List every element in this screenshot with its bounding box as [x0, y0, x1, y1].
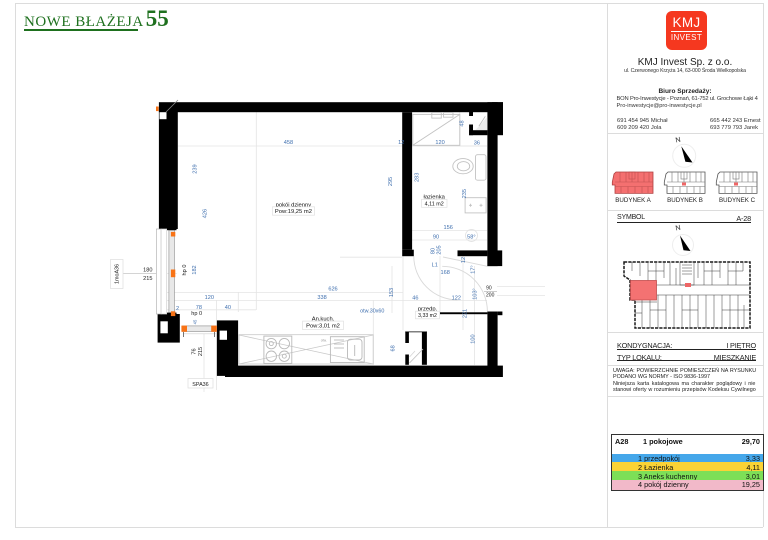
svg-text:239: 239 — [192, 164, 198, 173]
svg-text:hp 0: hp 0 — [182, 265, 188, 276]
svg-text:182: 182 — [192, 265, 198, 274]
svg-text:4,11 m2: 4,11 m2 — [425, 202, 444, 208]
svg-text:626: 626 — [328, 287, 337, 293]
svg-text:205: 205 — [437, 245, 443, 254]
svg-text:90: 90 — [486, 286, 492, 292]
svg-text:N: N — [675, 137, 681, 145]
svg-text:215: 215 — [143, 276, 152, 282]
svg-text:12: 12 — [398, 140, 404, 146]
svg-text:90: 90 — [433, 235, 439, 241]
svg-text:295: 295 — [388, 177, 394, 186]
svg-text:58°: 58° — [467, 234, 475, 240]
svg-text:3,33 m2: 3,33 m2 — [418, 313, 437, 319]
svg-text:215: 215 — [198, 347, 204, 356]
svg-text:76: 76 — [192, 348, 198, 354]
svg-text:221: 221 — [463, 309, 469, 318]
svg-text:168: 168 — [441, 270, 450, 276]
svg-text:458: 458 — [284, 140, 293, 146]
svg-text:17°: 17° — [470, 265, 476, 273]
svg-text:68: 68 — [390, 345, 396, 351]
svg-text:SPA36: SPA36 — [192, 382, 208, 388]
svg-text:180: 180 — [143, 267, 152, 273]
svg-text:Pow:3,01 m2: Pow:3,01 m2 — [306, 324, 340, 330]
svg-text:45: 45 — [193, 319, 198, 324]
svg-text:120: 120 — [205, 295, 214, 301]
svg-text:Pow:19,25 m2: Pow:19,25 m2 — [275, 209, 312, 215]
svg-text:283: 283 — [415, 173, 421, 182]
svg-text:hp 0: hp 0 — [191, 311, 202, 317]
svg-text:200: 200 — [486, 292, 495, 298]
svg-text:338: 338 — [317, 295, 326, 301]
svg-text:40: 40 — [225, 305, 231, 311]
svg-text:153: 153 — [389, 288, 395, 297]
svg-text:48: 48 — [460, 120, 466, 126]
svg-text:100: 100 — [471, 334, 477, 343]
svg-text:otw.: otw. — [321, 339, 327, 343]
svg-text:156: 156 — [444, 225, 453, 231]
svg-text:12: 12 — [461, 257, 467, 263]
svg-text:1moA36: 1moA36 — [115, 264, 121, 284]
svg-text:122: 122 — [452, 296, 461, 302]
svg-text:2: 2 — [176, 306, 179, 312]
svg-text:N: N — [675, 225, 681, 233]
svg-text:426: 426 — [202, 209, 208, 218]
svg-text:78: 78 — [196, 305, 202, 311]
svg-text:otw.30x60: otw.30x60 — [360, 309, 384, 315]
svg-text:103°: 103° — [472, 288, 478, 300]
svg-text:L1: L1 — [432, 262, 438, 268]
svg-text:235: 235 — [462, 189, 468, 198]
svg-text:120: 120 — [435, 140, 444, 146]
svg-text:46: 46 — [412, 296, 418, 302]
svg-text:36: 36 — [474, 140, 480, 146]
